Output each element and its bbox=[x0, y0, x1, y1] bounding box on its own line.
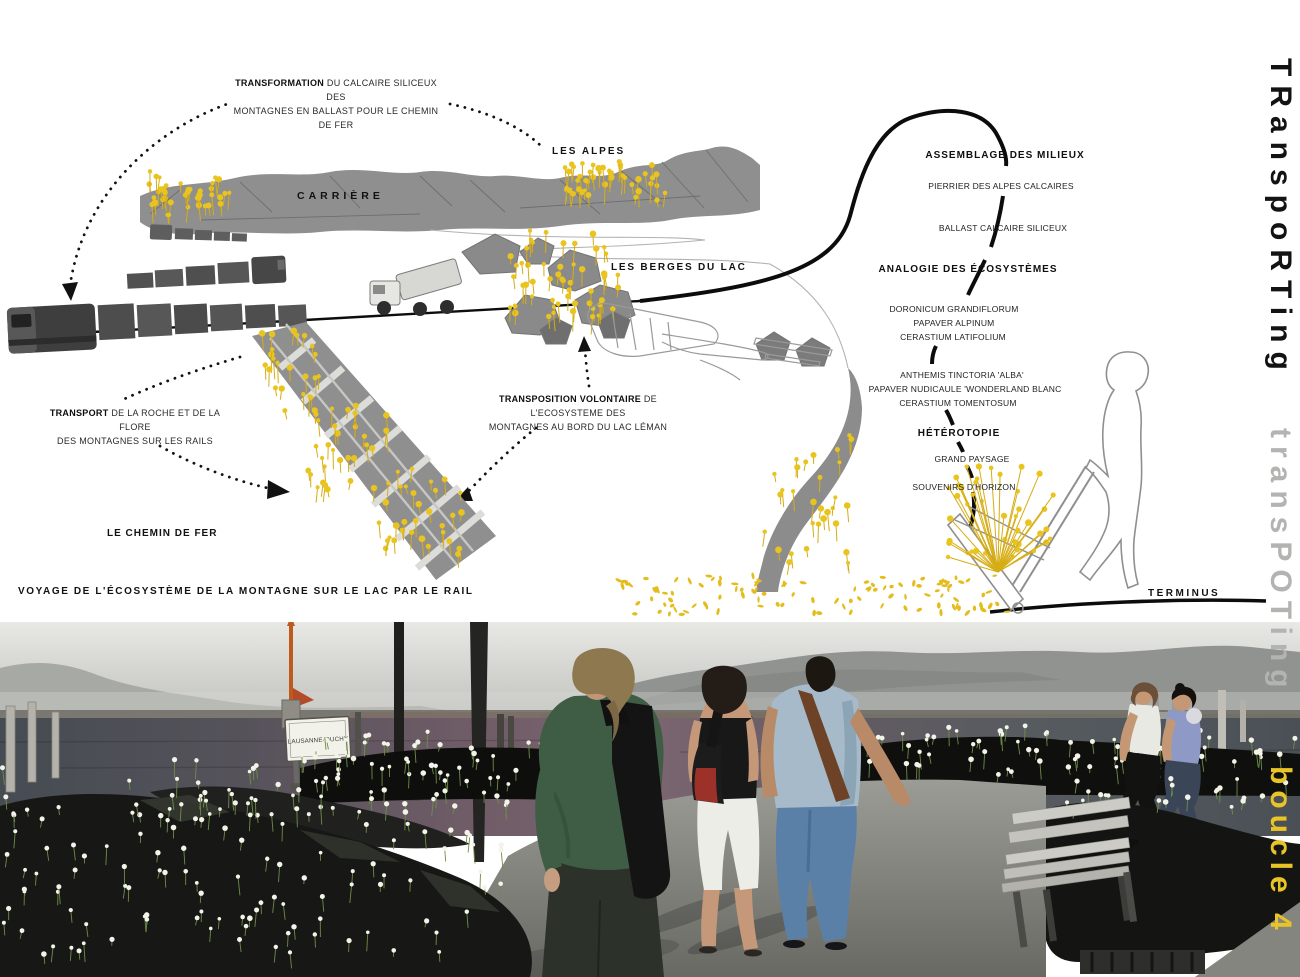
species-papaver-alpinum: PAPAVER ALPINUM bbox=[914, 318, 995, 328]
grand-paysage-item: GRAND PAYSAGE bbox=[934, 454, 1009, 464]
heterotopie-heading: HÉTÉROTOPIE bbox=[918, 428, 1001, 439]
walking-figure-outline bbox=[1080, 352, 1148, 588]
analogie-heading: ANALOGIE DES ÉCOSYSTÈMES bbox=[878, 264, 1057, 275]
transformation-note-line2: MONTAGNES EN BALLAST POUR LE CHEMIN DE F… bbox=[234, 106, 439, 130]
terminus-label: TERMINUS bbox=[1148, 588, 1220, 599]
transport-note-lead: TRANSPORT bbox=[50, 408, 109, 418]
transformation-note: TRANSFORMATION DU CALCAIRE SILICEUX DES … bbox=[226, 76, 446, 132]
species-doronicum: DORONICUM GRANDIFLORUM bbox=[889, 304, 1018, 314]
vertical-title-transpoting: transPOTing bbox=[1264, 428, 1296, 695]
train-medium bbox=[126, 256, 286, 291]
species-cerastium-latifolium: CERASTIUM LATIFOLIUM bbox=[900, 332, 1006, 342]
railway-track bbox=[252, 322, 496, 580]
transposition-note: TRANSPOSITION VOLONTAIRE DE L'ECOSYSTEME… bbox=[462, 392, 694, 434]
vertical-title-boucle4: boucle 4 bbox=[1264, 766, 1296, 936]
transposition-note-lead: TRANSPOSITION VOLONTAIRE bbox=[499, 394, 641, 404]
voyage-label: VOYAGE DE L'ÉCOSYSTÈME DE LA MONTAGNE SU… bbox=[18, 586, 474, 597]
les-alpes-label: LES ALPES bbox=[552, 146, 625, 157]
species-anthemis: ANTHEMIS TINCTORIA 'ALBA' bbox=[900, 370, 1024, 380]
ballast-item: BALLAST CALCAIRE SILICEUX bbox=[939, 223, 1067, 233]
transport-note: TRANSPORT DE LA ROCHE ET DE LA FLORE DES… bbox=[40, 406, 230, 448]
souvenirs-item: SOUVENIRS D'HORIZON bbox=[912, 482, 1015, 492]
photo-montage: LAUSANNE-OUCHY bbox=[0, 622, 1300, 977]
les-berges-label: LES BERGES DU LAC bbox=[611, 262, 747, 273]
drain-grate bbox=[1080, 950, 1205, 974]
alps-mountain-range bbox=[140, 147, 760, 235]
species-papaver-nudicaule: PAPAVER NUDICAULE 'WONDERLAND BLANC bbox=[869, 384, 1062, 394]
transport-note-rest: DE LA ROCHE ET DE LA FLORE bbox=[109, 408, 221, 432]
transformation-note-lead: TRANSFORMATION bbox=[235, 78, 324, 88]
transposition-note-line2: MONTAGNES AU BORD DU LAC LÉMAN bbox=[489, 422, 667, 432]
dump-truck bbox=[370, 258, 462, 316]
vertical-title-transporting: TRanspoRTing bbox=[1264, 58, 1296, 379]
carriere-label: CARRIÈRE bbox=[297, 190, 384, 202]
pierrier-item: PIERRIER DES ALPES CALCAIRES bbox=[928, 181, 1073, 191]
species-cerastium-tomentosum: CERASTIUM TOMENTOSUM bbox=[899, 398, 1016, 408]
transformation-note-rest: DU CALCAIRE SILICEUX DES bbox=[324, 78, 437, 102]
petal-spill bbox=[936, 578, 992, 617]
chemin-de-fer-label: LE CHEMIN DE FER bbox=[107, 528, 217, 539]
transport-note-line2: DES MONTAGNES SUR LES RAILS bbox=[57, 436, 213, 446]
assemblage-heading: ASSEMBLAGE DES MILIEUX bbox=[925, 150, 1084, 161]
petal-trail bbox=[615, 572, 1011, 617]
